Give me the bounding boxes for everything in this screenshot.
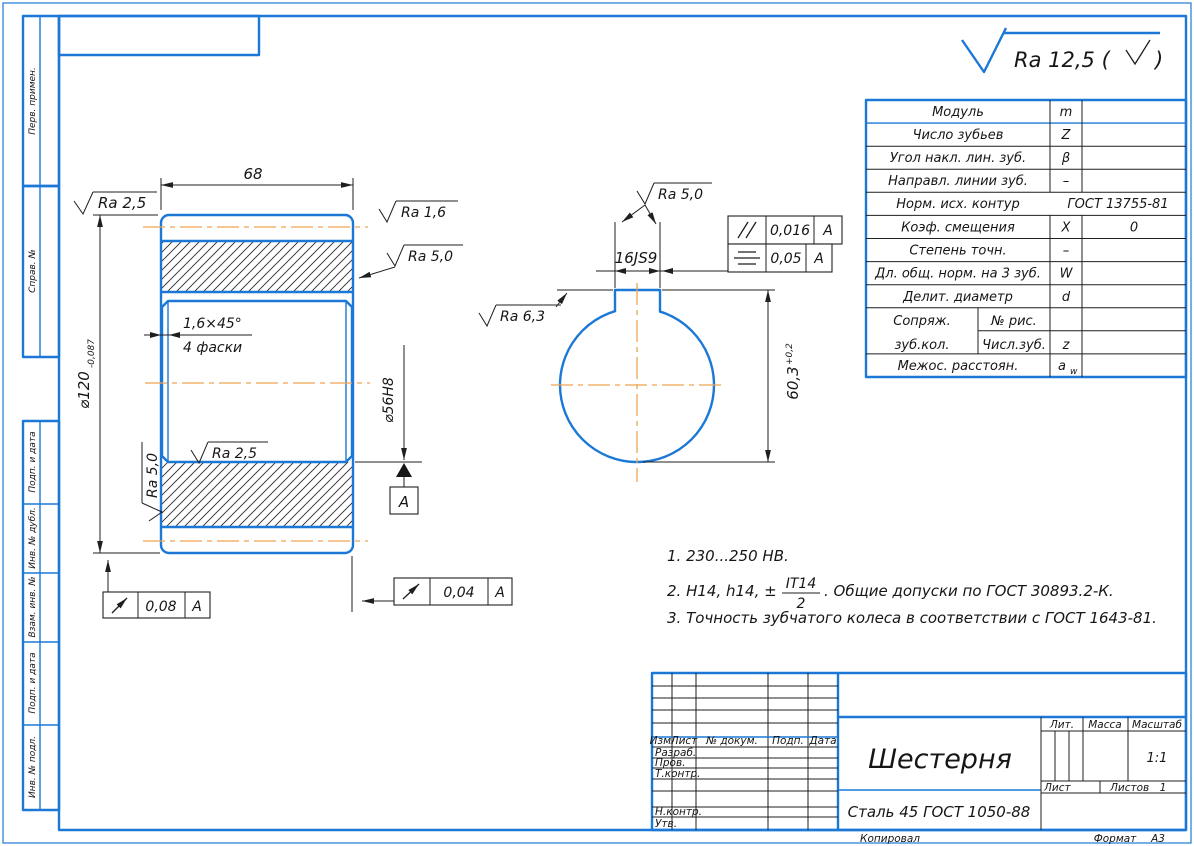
tolerance-value: 0,05 — [770, 251, 801, 267]
param-name: Коэф. смещения — [901, 221, 1015, 236]
ra-text: Ra 2,5 — [212, 446, 257, 462]
param-symbol: – — [1063, 174, 1070, 189]
param-name: зуб.кол. — [894, 338, 949, 353]
dim-text: 68 — [243, 165, 262, 183]
col-data: Дата — [808, 735, 836, 747]
datum-letter: А — [398, 493, 409, 511]
drawing-canvas: Перв. примен. Справ. № Подп. и дата Инв.… — [0, 0, 1194, 846]
chamfer-text: 1,6×45° — [183, 316, 242, 332]
param-name: Степень точн. — [909, 244, 1006, 259]
row-utv: Утв. — [655, 818, 677, 830]
chamfer-note: 4 фаски — [183, 340, 242, 356]
note-2-prefix: 2. H14, h14, ± — [667, 582, 777, 600]
dim-text: ⌀120 — [75, 371, 93, 409]
param-name: Модуль — [932, 105, 984, 120]
margin-label: Справ. № — [28, 249, 38, 293]
lit-label: Лит. — [1049, 719, 1074, 731]
general-roughness-close: ) — [1153, 48, 1163, 72]
row-nkontr: Н.контр. — [655, 806, 702, 818]
dim-text: 16JS9 — [615, 249, 658, 267]
param-symbol: a — [1058, 359, 1066, 374]
symmetry-frame: 0,05 А — [728, 244, 832, 272]
param-symbol: – — [1063, 244, 1070, 259]
dim-text: 60,3 — [784, 366, 802, 399]
col-doc: № докум. — [705, 735, 758, 747]
sheet-label: Лист — [1043, 782, 1071, 794]
sheets-value: 1 — [1160, 782, 1167, 794]
parallelism-frame: 0,016 А — [728, 216, 842, 244]
tolerance-value: 0,08 — [145, 599, 176, 615]
ra-text: Ra 2,5 — [98, 194, 146, 212]
scale-value: 1:1 — [1147, 751, 1168, 766]
param-name: Делит. диаметр — [902, 290, 1013, 305]
ra-text: Ra 5,0 — [658, 187, 703, 203]
hatch-bottom — [162, 462, 352, 527]
drawing-sheet: Перв. примен. Справ. № Подп. и дата Инв.… — [0, 0, 1194, 846]
margin-label: Взам. инв. № — [28, 576, 38, 637]
format-value: А3 — [1150, 833, 1165, 845]
param-name: Угол накл. лин. зуб. — [890, 151, 1026, 166]
note-2-suffix: . Общие допуски по ГОСТ 30893.2-К. — [824, 582, 1114, 600]
tolerance-datum: А — [494, 585, 505, 601]
ra-text: Ra 1,6 — [401, 205, 446, 221]
margin-label: Подп. и дата — [28, 431, 38, 492]
param-symbol: z — [1062, 338, 1071, 353]
param-symbol: Z — [1061, 128, 1072, 143]
tolerance-datum: А — [822, 223, 833, 239]
dim-tolerance: +0,2 — [785, 343, 795, 365]
tolerance-value: 0,04 — [443, 585, 474, 601]
margin-label: Инв. № дубл. — [28, 507, 38, 569]
dim-tolerance: -0,087 — [87, 339, 97, 368]
col-podp: Подп. — [772, 735, 804, 747]
scale-label: Масштаб — [1132, 719, 1182, 731]
param-name: Норм. исх. контур — [896, 197, 1019, 212]
tolerance-datum: А — [813, 251, 824, 267]
param-symbol: W — [1060, 267, 1074, 282]
ra-text: Ra 5,0 — [408, 249, 453, 265]
format-label: Формат — [1094, 833, 1137, 845]
material: Сталь 45 ГОСТ 1050-88 — [848, 803, 1031, 821]
param-value: ГОСТ 13755-81 — [1067, 197, 1168, 212]
param-symbol: d — [1062, 290, 1071, 305]
param-name: Число зубьев — [913, 128, 1004, 143]
col-list: Лист — [670, 735, 698, 747]
param-value: 0 — [1130, 221, 1138, 236]
ra-text: Ra 5,0 — [145, 453, 161, 498]
margin-label: Перв. примен. — [28, 67, 38, 135]
mass-label: Масса — [1088, 719, 1121, 731]
param-symbol: m — [1060, 105, 1073, 120]
param-symbol: X — [1061, 221, 1072, 236]
margin-label: Подп. и дата — [28, 652, 38, 713]
param-name: Направл. линии зуб. — [888, 174, 1028, 189]
note-3: 3. Точность зубчатого колеса в соответст… — [667, 609, 1157, 627]
param-symbol: β — [1061, 151, 1070, 166]
param-name: Межос. расстоян. — [898, 359, 1019, 374]
margin-label: Инв. № подл. — [28, 736, 38, 798]
param-subname: № рис. — [990, 314, 1037, 329]
note-1: 1. 230...250 НВ. — [667, 547, 789, 565]
part-name: Шестерня — [868, 744, 1012, 775]
hatch-top — [162, 241, 352, 292]
note-2-numerator: IT14 — [786, 576, 817, 592]
copied-label: Копировал — [860, 833, 920, 845]
row-tkontr: Т.контр. — [655, 768, 701, 780]
ra-text: Ra 6,3 — [500, 309, 545, 325]
param-symbol-sub: w — [1070, 367, 1078, 377]
param-subname: Числ.зуб. — [982, 338, 1046, 353]
sheets-label: Листов — [1109, 782, 1149, 794]
dim-text: ⌀56H8 — [381, 377, 397, 423]
tolerance-value: 0,016 — [770, 223, 810, 239]
general-roughness-text: Ra 12,5 ( — [1014, 48, 1111, 72]
param-name: Дл. общ. норм. на 3 зуб. — [874, 267, 1041, 282]
tolerance-datum: А — [191, 599, 202, 615]
param-name: Сопряж. — [893, 314, 950, 329]
